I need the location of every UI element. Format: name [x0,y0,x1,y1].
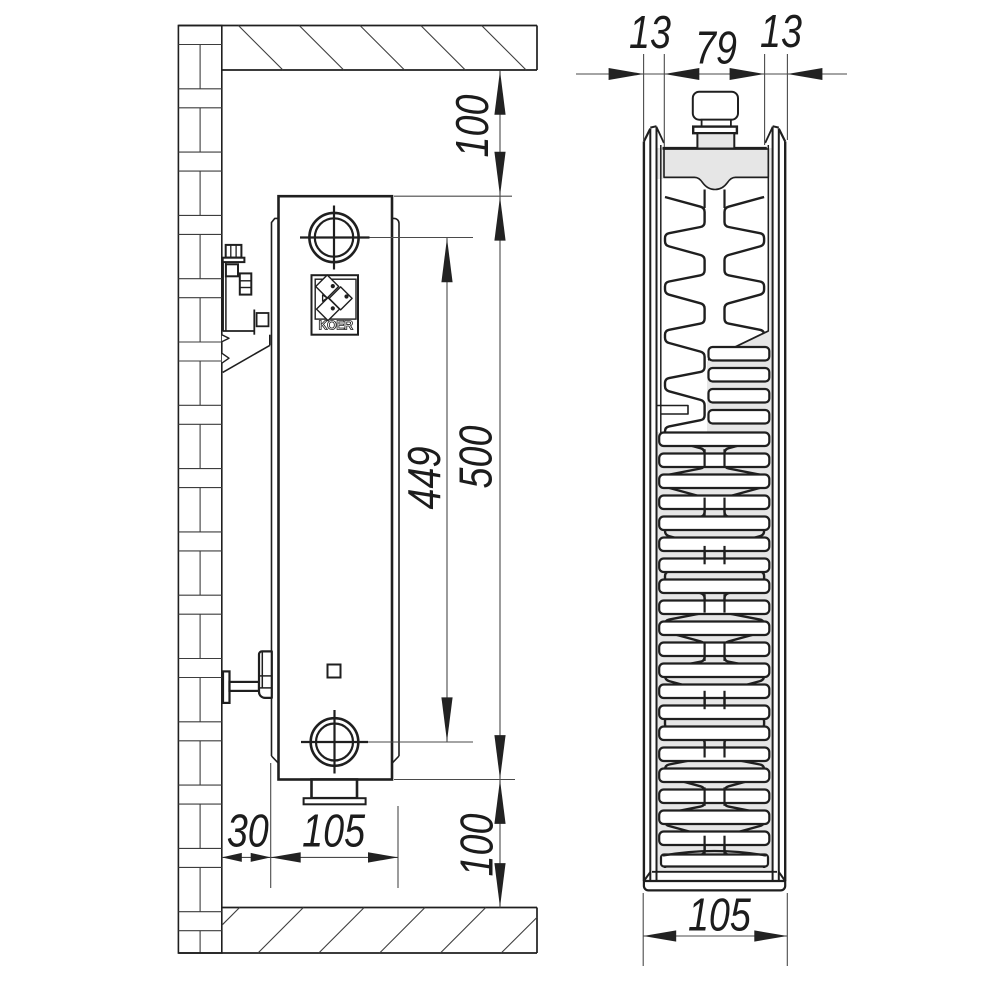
svg-text:KOER: KOER [319,319,354,333]
svg-text:13: 13 [760,5,802,56]
svg-text:105: 105 [302,805,365,856]
svg-text:449: 449 [398,447,449,510]
svg-text:30: 30 [227,805,269,856]
svg-text:79: 79 [695,22,737,73]
svg-text:100: 100 [451,813,502,876]
svg-text:13: 13 [629,6,671,57]
svg-text:100: 100 [446,94,497,157]
svg-text:500: 500 [450,425,501,488]
svg-text:105: 105 [688,889,751,940]
